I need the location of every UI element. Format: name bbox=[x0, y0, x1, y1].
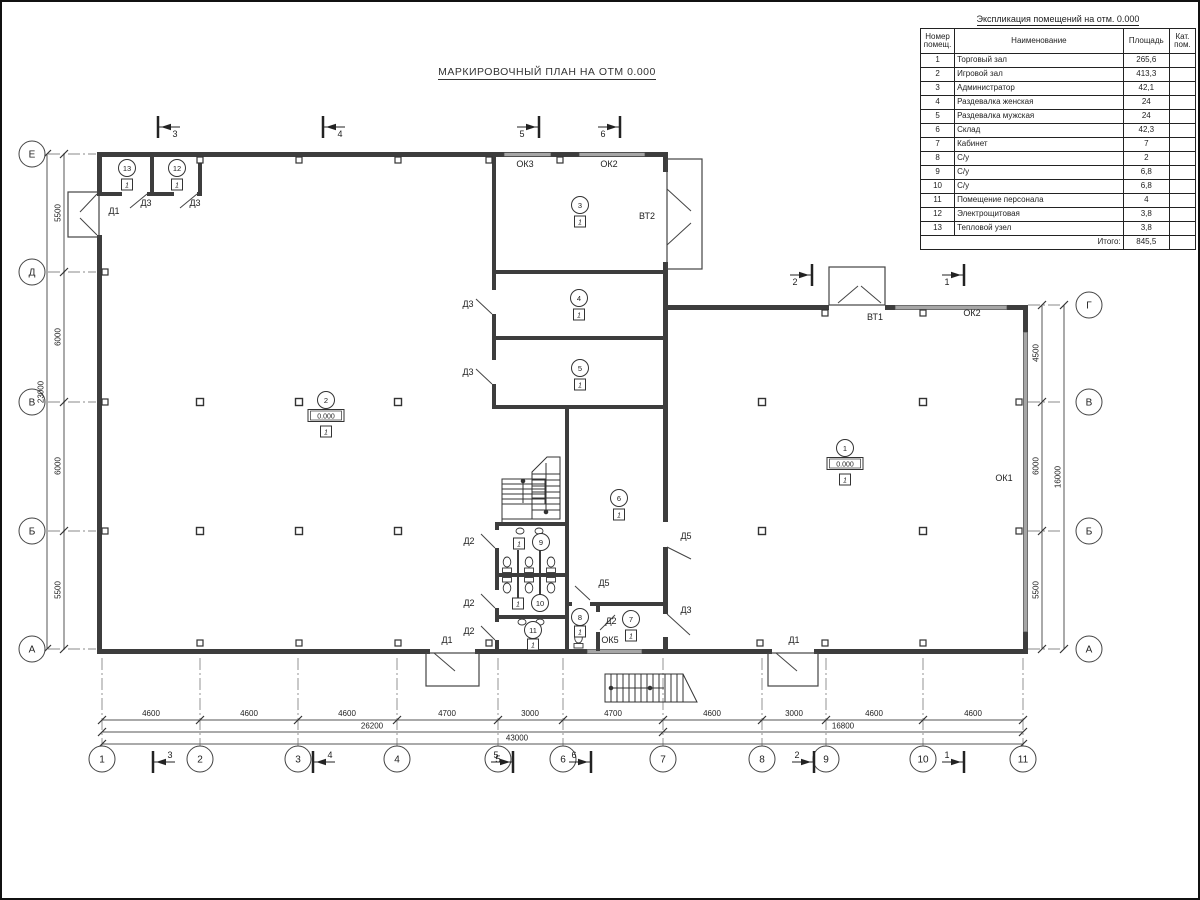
room-category-cell bbox=[1169, 96, 1195, 110]
plan-geometry bbox=[476, 369, 492, 384]
plan-geometry bbox=[757, 640, 763, 646]
plan-geometry bbox=[395, 399, 402, 406]
room-name-cell: Администратор bbox=[955, 82, 1124, 96]
section-marker: 4 bbox=[313, 750, 335, 773]
floor-type-number: 1 bbox=[843, 477, 847, 484]
plan-geometry bbox=[557, 157, 563, 163]
gate-label: ВТ2 bbox=[639, 211, 655, 221]
plan-geometry bbox=[525, 578, 534, 583]
room-category-cell bbox=[1169, 124, 1195, 138]
room-area-cell: 2 bbox=[1123, 152, 1169, 166]
plan-geometry bbox=[481, 594, 495, 608]
room-number-cell: 3 bbox=[921, 82, 955, 96]
plan-geometry bbox=[565, 602, 572, 606]
room-name-cell: С/у bbox=[955, 152, 1124, 166]
plan-geometry bbox=[525, 557, 533, 567]
plan-geometry bbox=[197, 157, 203, 163]
dim-label: 4700 bbox=[438, 709, 456, 718]
col-header-number: Номерпомещ. bbox=[921, 29, 955, 54]
plan-geometry bbox=[838, 286, 858, 303]
room-category-cell bbox=[1169, 180, 1195, 194]
plan-geometry bbox=[814, 649, 1023, 654]
plan-geometry bbox=[296, 399, 303, 406]
plan-geometry bbox=[517, 550, 519, 573]
plan-geometry bbox=[516, 528, 524, 534]
plan-geometry bbox=[1016, 399, 1022, 405]
room-number-cell: 12 bbox=[921, 208, 955, 222]
elevation-value: 0.000 bbox=[317, 414, 335, 421]
section-arrow bbox=[951, 272, 961, 278]
section-marker: 5 bbox=[517, 116, 539, 139]
section-number: 6 bbox=[600, 129, 605, 139]
plan-geometry bbox=[492, 152, 496, 290]
room-number-cell: 9 bbox=[921, 166, 955, 180]
room-number: 1 bbox=[843, 444, 847, 453]
plan-geometry bbox=[574, 644, 583, 649]
plan-geometry bbox=[495, 615, 569, 619]
table-row: 10С/у6,8 bbox=[921, 180, 1196, 194]
plan-geometry bbox=[147, 192, 154, 196]
room-name-cell: Игровой зал bbox=[955, 68, 1124, 82]
plan-geometry bbox=[885, 305, 895, 310]
plan-geometry: Экспликация помещений на отм. 0.000 bbox=[977, 14, 1140, 26]
drawing-sheet: МАРКИРОВОЧНЫЙ ПЛАН НА ОТМ 0.000 bbox=[0, 0, 1200, 900]
room-area-cell: 3,8 bbox=[1123, 222, 1169, 236]
room-category-cell bbox=[1169, 166, 1195, 180]
section-arrow bbox=[316, 759, 326, 765]
dim-label: 6000 bbox=[54, 328, 63, 346]
plan-geometry bbox=[667, 614, 690, 635]
plan-geometry bbox=[504, 153, 551, 157]
plan-geometry bbox=[547, 557, 555, 567]
floor-type-number: 1 bbox=[578, 629, 582, 636]
table-row: 4Раздевалка женская24 bbox=[921, 96, 1196, 110]
table-row: 1Торговый зал265,6 bbox=[921, 54, 1196, 68]
section-number: 2 bbox=[792, 277, 797, 287]
section-arrow bbox=[951, 759, 961, 765]
plan-geometry bbox=[547, 583, 555, 593]
room-number-cell: 13 bbox=[921, 222, 955, 236]
section-arrow bbox=[607, 124, 617, 130]
room-area-cell: 24 bbox=[1123, 96, 1169, 110]
door-label: Д3 bbox=[680, 605, 691, 615]
window-label: ОК2 bbox=[600, 159, 617, 169]
plan-geometry bbox=[667, 189, 691, 211]
plan-geometry bbox=[518, 619, 526, 625]
section-marker: 2 bbox=[792, 750, 814, 773]
window-label: ОК5 bbox=[601, 635, 618, 645]
plan-geometry bbox=[1023, 632, 1028, 654]
room-category-cell bbox=[1169, 138, 1195, 152]
room-number-cell: 1 bbox=[921, 54, 955, 68]
plan-geometry bbox=[663, 262, 668, 522]
plan-geometry bbox=[492, 336, 667, 340]
room-name-cell: С/у bbox=[955, 180, 1124, 194]
plan-geometry bbox=[102, 399, 108, 405]
door-label: Д3 bbox=[462, 367, 473, 377]
col-header-name: Наименование bbox=[955, 29, 1124, 54]
room-marker: 131 bbox=[119, 160, 136, 191]
section-number: 5 bbox=[493, 750, 498, 760]
door-label: Д2 bbox=[463, 598, 474, 608]
total-label: Итого: bbox=[921, 236, 1124, 250]
section-number: 5 bbox=[519, 129, 524, 139]
explication-table: Номерпомещ. Наименование Площадь Кат.пом… bbox=[920, 28, 1196, 250]
plan-geometry bbox=[667, 547, 691, 559]
section-marker: 6 bbox=[569, 750, 591, 773]
room-name-cell: Торговый зал bbox=[955, 54, 1124, 68]
room-category-cell bbox=[1169, 208, 1195, 222]
room-number: 13 bbox=[123, 164, 131, 173]
plan-geometry bbox=[486, 640, 492, 646]
axis-label: Б bbox=[29, 527, 36, 538]
window-label: ОК2 bbox=[963, 308, 980, 318]
room-marker: 81 bbox=[572, 609, 589, 638]
room-area-cell: 6,8 bbox=[1123, 166, 1169, 180]
room-area-cell: 3,8 bbox=[1123, 208, 1169, 222]
room-name-cell: Электрощитовая bbox=[955, 208, 1124, 222]
axis-label: А bbox=[1086, 645, 1093, 656]
plan-geometry bbox=[642, 649, 772, 654]
table-row: 11Помещение персонала4 bbox=[921, 194, 1196, 208]
plan-geometry bbox=[579, 153, 645, 157]
door-label: Д3 bbox=[140, 198, 151, 208]
door-label: Д5 bbox=[598, 578, 609, 588]
plan-geometry bbox=[503, 578, 512, 583]
plan-geometry bbox=[663, 637, 668, 654]
axis-label: 2 bbox=[197, 755, 203, 766]
dim-label: 16800 bbox=[832, 722, 855, 731]
plan-geometry bbox=[596, 606, 600, 612]
axis-label: Б bbox=[1086, 527, 1093, 538]
section-marker: 1 bbox=[942, 750, 964, 773]
section-arrow bbox=[156, 759, 166, 765]
door-label: Д1 bbox=[788, 635, 799, 645]
axis-label: Д bbox=[29, 268, 36, 279]
room-marker: 41 bbox=[571, 290, 588, 321]
floor-type-number: 1 bbox=[324, 429, 328, 436]
stairs-symbol bbox=[502, 457, 560, 522]
axis-label: 6 bbox=[560, 755, 566, 766]
plan-geometry bbox=[665, 305, 829, 310]
room-name-cell: Тепловой узел bbox=[955, 222, 1124, 236]
axis-label: Е bbox=[29, 150, 36, 161]
plan-geometry bbox=[503, 557, 511, 567]
external-stair bbox=[605, 674, 697, 702]
total-value: 845,5 bbox=[1123, 236, 1169, 250]
room-number: 5 bbox=[578, 364, 582, 373]
section-marker: 1 bbox=[942, 264, 964, 287]
plan-geometry bbox=[395, 640, 401, 646]
axis-grid-lines bbox=[48, 154, 1063, 748]
room-area-cell: 24 bbox=[1123, 110, 1169, 124]
room-area-cell: 42,1 bbox=[1123, 82, 1169, 96]
col-header-area: Площадь bbox=[1123, 29, 1169, 54]
plan-geometry bbox=[667, 223, 691, 245]
plan-geometry bbox=[1007, 305, 1023, 310]
plan-geometry bbox=[822, 640, 828, 646]
window-label: ОК1 bbox=[995, 473, 1012, 483]
plan-geometry bbox=[481, 534, 495, 548]
room-area-cell: 413,3 bbox=[1123, 68, 1169, 82]
plan-geometry bbox=[154, 192, 174, 196]
plan-geometry bbox=[476, 299, 492, 314]
axis-label: В bbox=[1086, 398, 1093, 409]
dim-label: 4600 bbox=[142, 709, 160, 718]
dim-label: 4600 bbox=[338, 709, 356, 718]
dim-label: 3000 bbox=[785, 709, 803, 718]
plan-geometry: 1Торговый зал265,62Игровой зал413,33Адми… bbox=[921, 54, 1196, 236]
table-row: 5Раздевалка мужская24 bbox=[921, 110, 1196, 124]
table-row: 8С/у2 bbox=[921, 152, 1196, 166]
room-area-cell: 7 bbox=[1123, 138, 1169, 152]
plan-geometry bbox=[525, 568, 534, 573]
plan-geometry bbox=[667, 159, 702, 269]
axis-label: Г bbox=[1086, 301, 1092, 312]
axis-label: 9 bbox=[823, 755, 829, 766]
table-row: 3Администратор42,1 bbox=[921, 82, 1196, 96]
dimension-labels: 4600460046004700300047004600300046004600… bbox=[37, 204, 1063, 743]
section-number: 1 bbox=[944, 750, 949, 760]
floor-type-number: 1 bbox=[175, 182, 179, 189]
room-number-cell: 5 bbox=[921, 110, 955, 124]
room-number-cell: 10 bbox=[921, 180, 955, 194]
dim-label-total: 43000 bbox=[506, 734, 529, 743]
door-label: Д2 bbox=[463, 626, 474, 636]
plan-geometry bbox=[97, 152, 102, 192]
room-category-cell bbox=[1169, 82, 1195, 96]
plan-geometry bbox=[1023, 305, 1028, 332]
plan-geometry bbox=[920, 528, 927, 535]
plan-geometry bbox=[495, 573, 569, 577]
room-number-cell: 4 bbox=[921, 96, 955, 110]
dim-label: 4600 bbox=[865, 709, 883, 718]
plan-geometry bbox=[492, 405, 667, 409]
room-category-cell bbox=[1169, 54, 1195, 68]
room-number: 6 bbox=[617, 494, 621, 503]
dim-label: 5500 bbox=[54, 581, 63, 599]
room-markers: 10.000120.000131415161718191101111121131 bbox=[119, 160, 864, 651]
plan-geometry bbox=[495, 640, 499, 653]
floor-type-number: 1 bbox=[629, 633, 633, 640]
table-row: 12Электрощитовая3,8 bbox=[921, 208, 1196, 222]
room-number: 11 bbox=[529, 626, 537, 635]
plan-geometry bbox=[1016, 528, 1022, 534]
plan-geometry bbox=[547, 578, 556, 583]
plan-geometry bbox=[197, 192, 202, 196]
wall-pilasters bbox=[102, 157, 1022, 646]
entrance-vestibules bbox=[68, 159, 885, 686]
plan-geometry bbox=[648, 686, 652, 690]
exterior-walls bbox=[97, 152, 1028, 654]
section-arrow bbox=[578, 759, 588, 765]
room-name-cell: Помещение персонала bbox=[955, 194, 1124, 208]
floor-type-number: 1 bbox=[578, 219, 582, 226]
plan-geometry bbox=[895, 306, 1007, 310]
door-label: Д1 bbox=[108, 206, 119, 216]
room-marker: 51 bbox=[572, 360, 589, 391]
plan-geometry bbox=[547, 568, 556, 573]
table-row: 2Игровой зал413,3 bbox=[921, 68, 1196, 82]
table-row: 7Кабинет7 bbox=[921, 138, 1196, 152]
section-marker: 3 bbox=[158, 116, 180, 139]
door-label: Д2 bbox=[463, 536, 474, 546]
table-row: 6Склад42,3 bbox=[921, 124, 1196, 138]
room-marker: 10.0001 bbox=[827, 440, 863, 486]
dim-label: 4600 bbox=[703, 709, 721, 718]
section-marker: 6 bbox=[598, 116, 620, 139]
plan-geometry bbox=[97, 192, 122, 196]
room-category-cell bbox=[1169, 68, 1195, 82]
plan-geometry bbox=[197, 399, 204, 406]
table-row: 9С/у6,8 bbox=[921, 166, 1196, 180]
room-marker: 71 bbox=[623, 611, 640, 642]
plan-geometry bbox=[495, 548, 499, 590]
section-arrow bbox=[799, 272, 809, 278]
room-marker: 121 bbox=[169, 160, 186, 191]
room-category-cell bbox=[1169, 110, 1195, 124]
plan-geometry bbox=[102, 269, 108, 275]
door-label: Д5 bbox=[680, 531, 691, 541]
section-number: 6 bbox=[571, 750, 576, 760]
room-number: 4 bbox=[577, 294, 581, 303]
axis-label: 8 bbox=[759, 755, 765, 766]
door-label: Д2 bbox=[605, 616, 616, 626]
plan-geometry: Итого: 845,5 bbox=[921, 236, 1196, 250]
axis-label: 7 bbox=[660, 755, 666, 766]
room-name-cell: Раздевалка мужская bbox=[955, 110, 1124, 124]
plan-geometry bbox=[296, 640, 302, 646]
room-number: 9 bbox=[539, 538, 543, 547]
plan-geometry: помещ. bbox=[924, 40, 952, 49]
axis-label: А bbox=[29, 645, 36, 656]
section-arrow bbox=[526, 124, 536, 130]
room-name-cell: Кабинет bbox=[955, 138, 1124, 152]
plan-geometry bbox=[68, 192, 99, 237]
room-marker: 31 bbox=[572, 197, 589, 228]
room-number: 12 bbox=[173, 164, 181, 173]
dim-label: 4600 bbox=[964, 709, 982, 718]
door-label: Д3 bbox=[462, 299, 473, 309]
dim-label: 6000 bbox=[54, 457, 63, 475]
plan-geometry bbox=[296, 528, 303, 535]
floor-type-number: 1 bbox=[516, 601, 520, 608]
floor-type-number: 1 bbox=[617, 512, 621, 519]
axis-label: 10 bbox=[917, 755, 929, 766]
room-number: 2 bbox=[324, 396, 328, 405]
dimension-ticks bbox=[43, 150, 1068, 748]
gate-label: ВТ1 bbox=[867, 312, 883, 322]
room-category-cell bbox=[1169, 222, 1195, 236]
plan-geometry bbox=[503, 568, 512, 573]
plan-geometry bbox=[575, 586, 590, 600]
plan-geometry bbox=[609, 686, 613, 690]
door-window-labels: Д1Д1Д1Д3Д3Д3Д3Д3Д2Д2Д2Д2Д5Д5ОК3ОК2ОК2ОК1… bbox=[108, 159, 1012, 645]
plan-geometry bbox=[920, 310, 926, 316]
plan-geometry bbox=[525, 583, 533, 593]
plan-geometry bbox=[150, 152, 154, 194]
room-number-cell: 2 bbox=[921, 68, 955, 82]
section-number: 2 bbox=[794, 750, 799, 760]
plan-geometry bbox=[590, 602, 665, 606]
total-category-cell bbox=[1169, 236, 1195, 250]
section-arrow bbox=[161, 124, 171, 130]
axis-label: 3 bbox=[295, 755, 301, 766]
dim-label: 4500 bbox=[1032, 344, 1041, 362]
plan-geometry bbox=[492, 270, 667, 274]
room-name-cell: Раздевалка женская bbox=[955, 96, 1124, 110]
room-area-cell: 42,3 bbox=[1123, 124, 1169, 138]
table-total-row: Итого: 845,5 bbox=[921, 236, 1196, 250]
plan-geometry bbox=[521, 479, 525, 483]
dim-label: 5500 bbox=[1032, 581, 1041, 599]
plan-geometry: Номерпомещ. Наименование Площадь Кат.пом… bbox=[921, 29, 1196, 54]
room-category-cell bbox=[1169, 152, 1195, 166]
table-row: 13Тепловой узел3,8 bbox=[921, 222, 1196, 236]
axis-label: 4 bbox=[394, 755, 400, 766]
plan-geometry bbox=[97, 649, 430, 654]
section-number: 4 bbox=[327, 750, 332, 760]
section-arrow bbox=[326, 124, 336, 130]
plan-geometry bbox=[822, 310, 828, 316]
door-label: Д1 bbox=[441, 635, 452, 645]
room-marker: 61 bbox=[611, 490, 628, 521]
plan-geometry bbox=[776, 653, 797, 671]
plan-geometry bbox=[395, 157, 401, 163]
plan-geometry bbox=[97, 235, 102, 654]
dim-label: 3000 bbox=[521, 709, 539, 718]
section-number: 3 bbox=[167, 750, 172, 760]
room-number-cell: 7 bbox=[921, 138, 955, 152]
elevation-value: 0.000 bbox=[836, 462, 854, 469]
room-name-cell: Склад bbox=[955, 124, 1124, 138]
plan-geometry bbox=[486, 157, 492, 163]
room-number: 7 bbox=[629, 615, 633, 624]
plan-geometry bbox=[920, 640, 926, 646]
room-number-cell: 8 bbox=[921, 152, 955, 166]
section-number: 4 bbox=[337, 129, 342, 139]
plan-geometry bbox=[102, 528, 108, 534]
plan-geometry bbox=[495, 522, 569, 526]
dim-label: 4700 bbox=[604, 709, 622, 718]
plan-geometry bbox=[517, 577, 519, 600]
window-label: ОК3 bbox=[516, 159, 533, 169]
plan-geometry bbox=[539, 550, 541, 573]
dim-label: 6000 bbox=[1032, 457, 1041, 475]
plan-geometry: пом. bbox=[1174, 40, 1191, 49]
plan-geometry bbox=[596, 632, 600, 651]
axis-label: В bbox=[29, 398, 36, 409]
floor-type-number: 1 bbox=[577, 312, 581, 319]
section-arrow bbox=[801, 759, 811, 765]
plan-geometry bbox=[587, 650, 642, 654]
room-marker: 20.0001 bbox=[308, 392, 344, 438]
plan-geometry bbox=[544, 510, 548, 514]
dim-label: 4600 bbox=[240, 709, 258, 718]
axis-label: 11 bbox=[1018, 755, 1029, 766]
plan-geometry bbox=[296, 157, 302, 163]
dim-label: 5500 bbox=[54, 204, 63, 222]
section-marker: 3 bbox=[153, 750, 175, 773]
room-marker: 111 bbox=[525, 622, 542, 651]
room-number: 3 bbox=[578, 201, 582, 210]
room-number: 8 bbox=[578, 613, 582, 622]
section-number: 3 bbox=[172, 129, 177, 139]
section-marker: 2 bbox=[790, 264, 812, 287]
plan-geometry bbox=[861, 286, 881, 303]
room-category-cell bbox=[1169, 194, 1195, 208]
plan-geometry bbox=[434, 653, 455, 671]
